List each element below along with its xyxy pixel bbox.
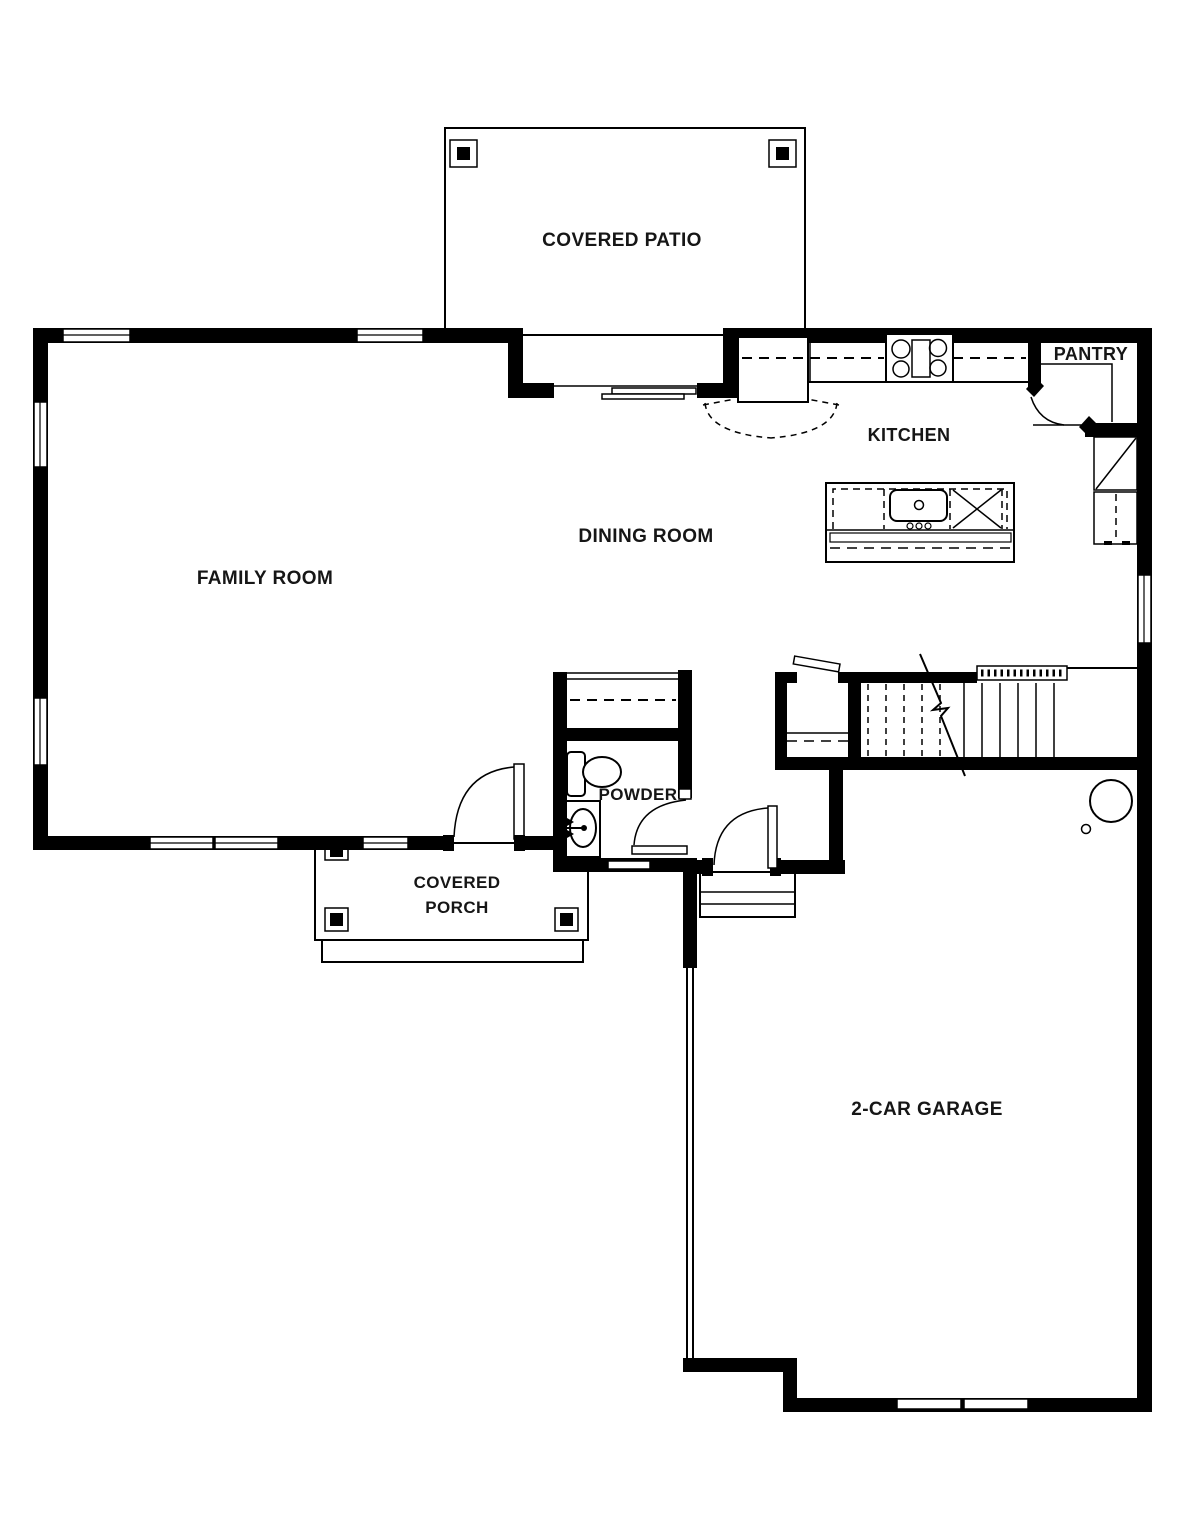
wall-segment (524, 836, 558, 850)
wall-segment (829, 758, 843, 874)
wall-segment (553, 672, 567, 870)
window (363, 837, 408, 849)
wall-segment (775, 672, 797, 683)
label-family-room: FAMILY ROOM (197, 568, 333, 589)
label-dining-room: DINING ROOM (578, 526, 713, 547)
window (150, 837, 213, 849)
window (63, 329, 130, 342)
wall-segment (775, 672, 787, 767)
window (34, 402, 47, 467)
label-garage: 2-CAR GARAGE (851, 1099, 1003, 1120)
wall-segment (683, 858, 697, 968)
threshold (608, 861, 650, 869)
wall-segment (678, 670, 692, 798)
wall-segment (553, 728, 692, 741)
label-kitchen: KITCHEN (868, 425, 951, 445)
stair-rail (977, 666, 1067, 680)
floor-plan-drawing: COVERED PATIO KITCHEN PANTRY DINING ROOM… (0, 0, 1187, 1536)
wall-segment (1137, 328, 1152, 1412)
label-pantry: PANTRY (1054, 344, 1128, 364)
window (1138, 575, 1151, 643)
window (357, 329, 423, 342)
stove (886, 334, 953, 382)
wall-segment (848, 672, 861, 767)
water-heater (1090, 780, 1132, 822)
label-powder: POWDER (599, 785, 678, 804)
label-covered-patio: COVERED PATIO (542, 230, 702, 251)
kitchen-island (826, 483, 1014, 562)
label-porch-line2: PORCH (425, 898, 488, 917)
wall-segment (775, 757, 1152, 770)
floor-plan-page: COVERED PATIO KITCHEN PANTRY DINING ROOM… (0, 0, 1187, 1536)
wall-segment (508, 383, 554, 398)
sink-vanity (566, 801, 600, 857)
window (34, 698, 47, 765)
wall-segment (683, 1358, 796, 1372)
window (215, 837, 278, 849)
label-porch-line1: COVERED (414, 873, 501, 892)
